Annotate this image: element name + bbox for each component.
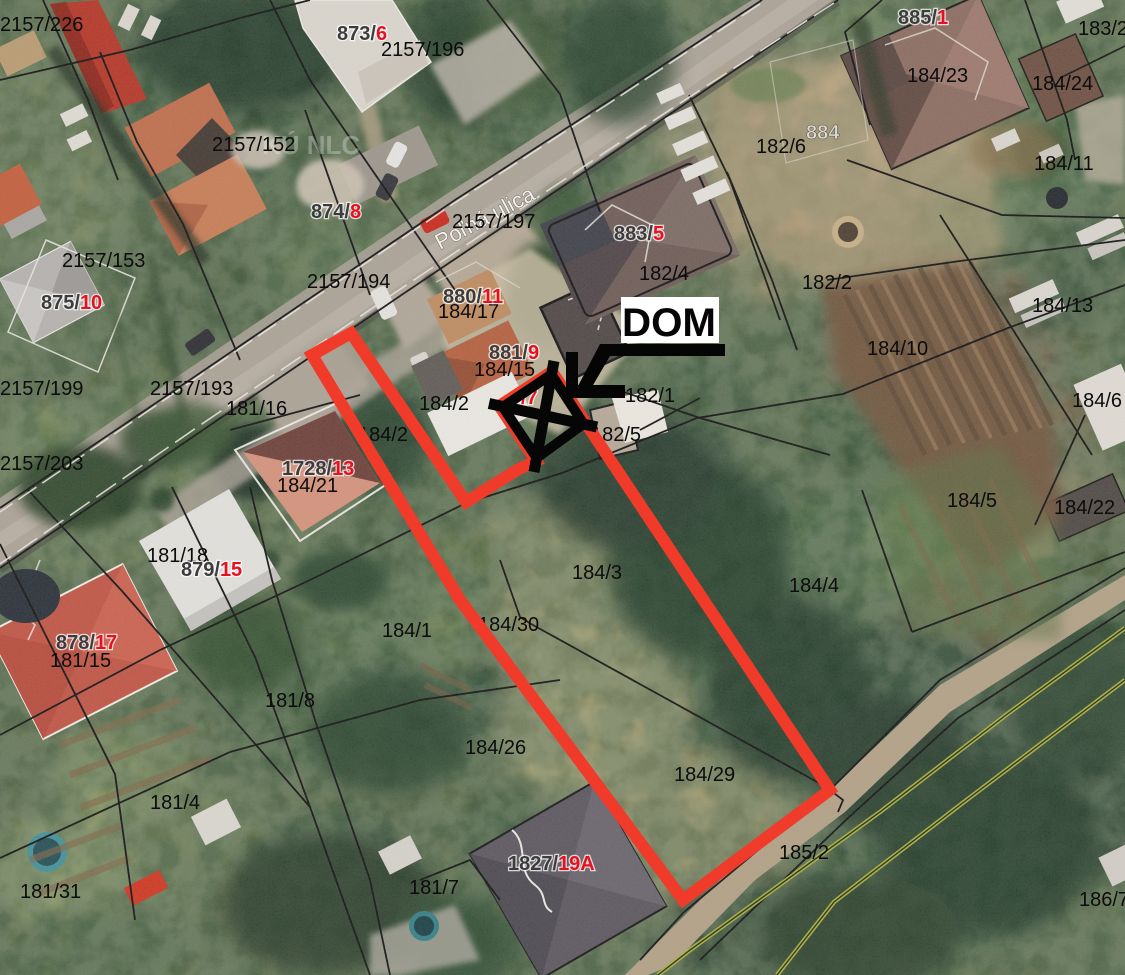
svg-text:2157/153: 2157/153 <box>62 250 145 272</box>
svg-text:184/6: 184/6 <box>1072 390 1122 412</box>
svg-text:873/6: 873/6 <box>337 23 387 45</box>
svg-text:184/24: 184/24 <box>1032 73 1093 95</box>
svg-text:186/7: 186/7 <box>1079 889 1125 911</box>
svg-text:2157/203: 2157/203 <box>0 453 83 475</box>
svg-text:1728/13: 1728/13 <box>282 458 354 480</box>
svg-text:875/10: 875/10 <box>41 292 102 314</box>
svg-text:185/2: 185/2 <box>779 842 829 864</box>
svg-text:881/9: 881/9 <box>489 342 539 364</box>
svg-text:181/16: 181/16 <box>226 398 287 420</box>
svg-text:2157/199: 2157/199 <box>0 378 83 400</box>
svg-text:181/7: 181/7 <box>409 877 459 899</box>
svg-text:184/13: 184/13 <box>1032 295 1093 317</box>
svg-text:181/4: 181/4 <box>150 792 200 814</box>
svg-text:2157/226: 2157/226 <box>0 14 83 36</box>
svg-text:2157/196: 2157/196 <box>381 39 464 61</box>
svg-text:184/23: 184/23 <box>907 65 968 87</box>
svg-text:182/1: 182/1 <box>625 385 675 407</box>
svg-text:878/17: 878/17 <box>56 632 117 654</box>
svg-text:883/5: 883/5 <box>614 223 664 245</box>
svg-text:874/8: 874/8 <box>311 201 361 223</box>
svg-text:181/8: 181/8 <box>265 690 315 712</box>
svg-text:184/1: 184/1 <box>382 620 432 642</box>
svg-text:182/4: 182/4 <box>639 263 689 285</box>
svg-text:181/31: 181/31 <box>20 881 81 903</box>
svg-text:184/3: 184/3 <box>572 562 622 584</box>
svg-text:182/6: 182/6 <box>756 136 806 158</box>
svg-text:184/11: 184/11 <box>1034 153 1094 175</box>
svg-text:880/11: 880/11 <box>443 286 503 308</box>
svg-text:184/4: 184/4 <box>789 575 839 597</box>
svg-text:2157/193: 2157/193 <box>150 378 233 400</box>
svg-text:879/15: 879/15 <box>181 559 242 581</box>
svg-text:2157/152: 2157/152 <box>212 134 295 156</box>
svg-text:183/2: 183/2 <box>1078 18 1125 40</box>
svg-text:885/1: 885/1 <box>898 7 948 29</box>
svg-text:1827/19A: 1827/19A <box>508 853 595 875</box>
svg-text:184/10: 184/10 <box>867 338 928 360</box>
svg-text:184/26: 184/26 <box>465 737 526 759</box>
svg-text:184/29: 184/29 <box>674 764 735 786</box>
svg-text:184/2: 184/2 <box>419 393 469 415</box>
svg-text:2157/197: 2157/197 <box>452 211 535 233</box>
svg-text:2157/194: 2157/194 <box>307 271 390 293</box>
svg-text:182/2: 182/2 <box>802 272 852 294</box>
svg-text:884: 884 <box>806 122 840 144</box>
svg-text:DOM: DOM <box>622 301 716 345</box>
svg-text:184/22: 184/22 <box>1054 497 1115 519</box>
svg-text:184/5: 184/5 <box>947 490 997 512</box>
